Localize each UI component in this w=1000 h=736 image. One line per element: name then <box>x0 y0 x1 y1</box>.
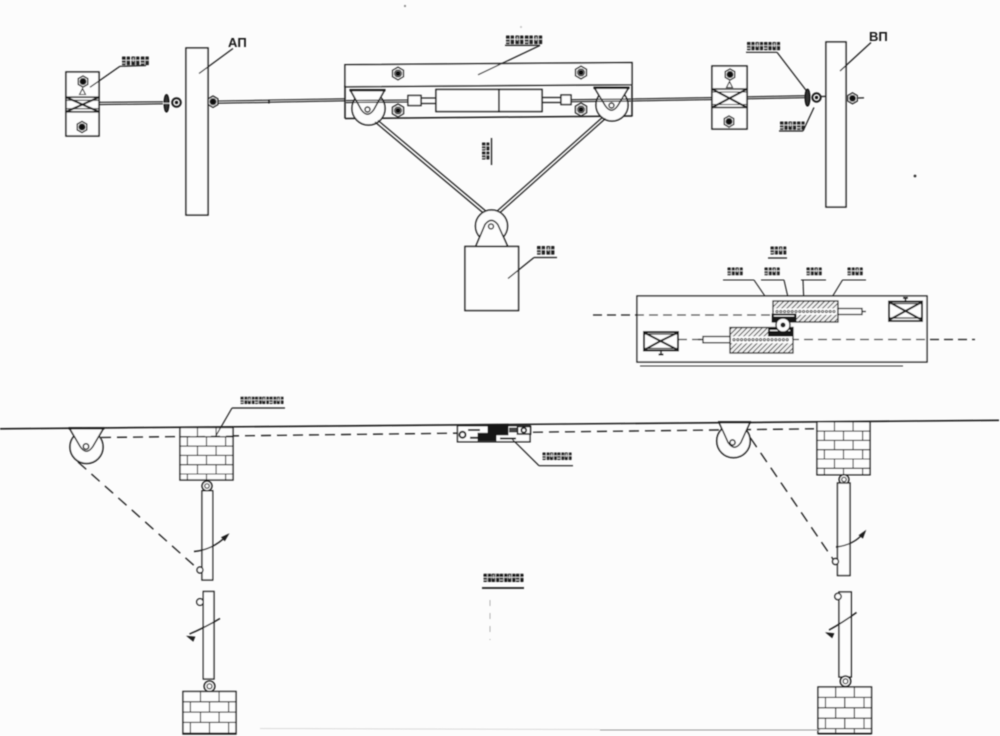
svg-text:BΠ: BΠ <box>869 29 888 44</box>
svg-text:AΠ: AΠ <box>228 35 247 50</box>
